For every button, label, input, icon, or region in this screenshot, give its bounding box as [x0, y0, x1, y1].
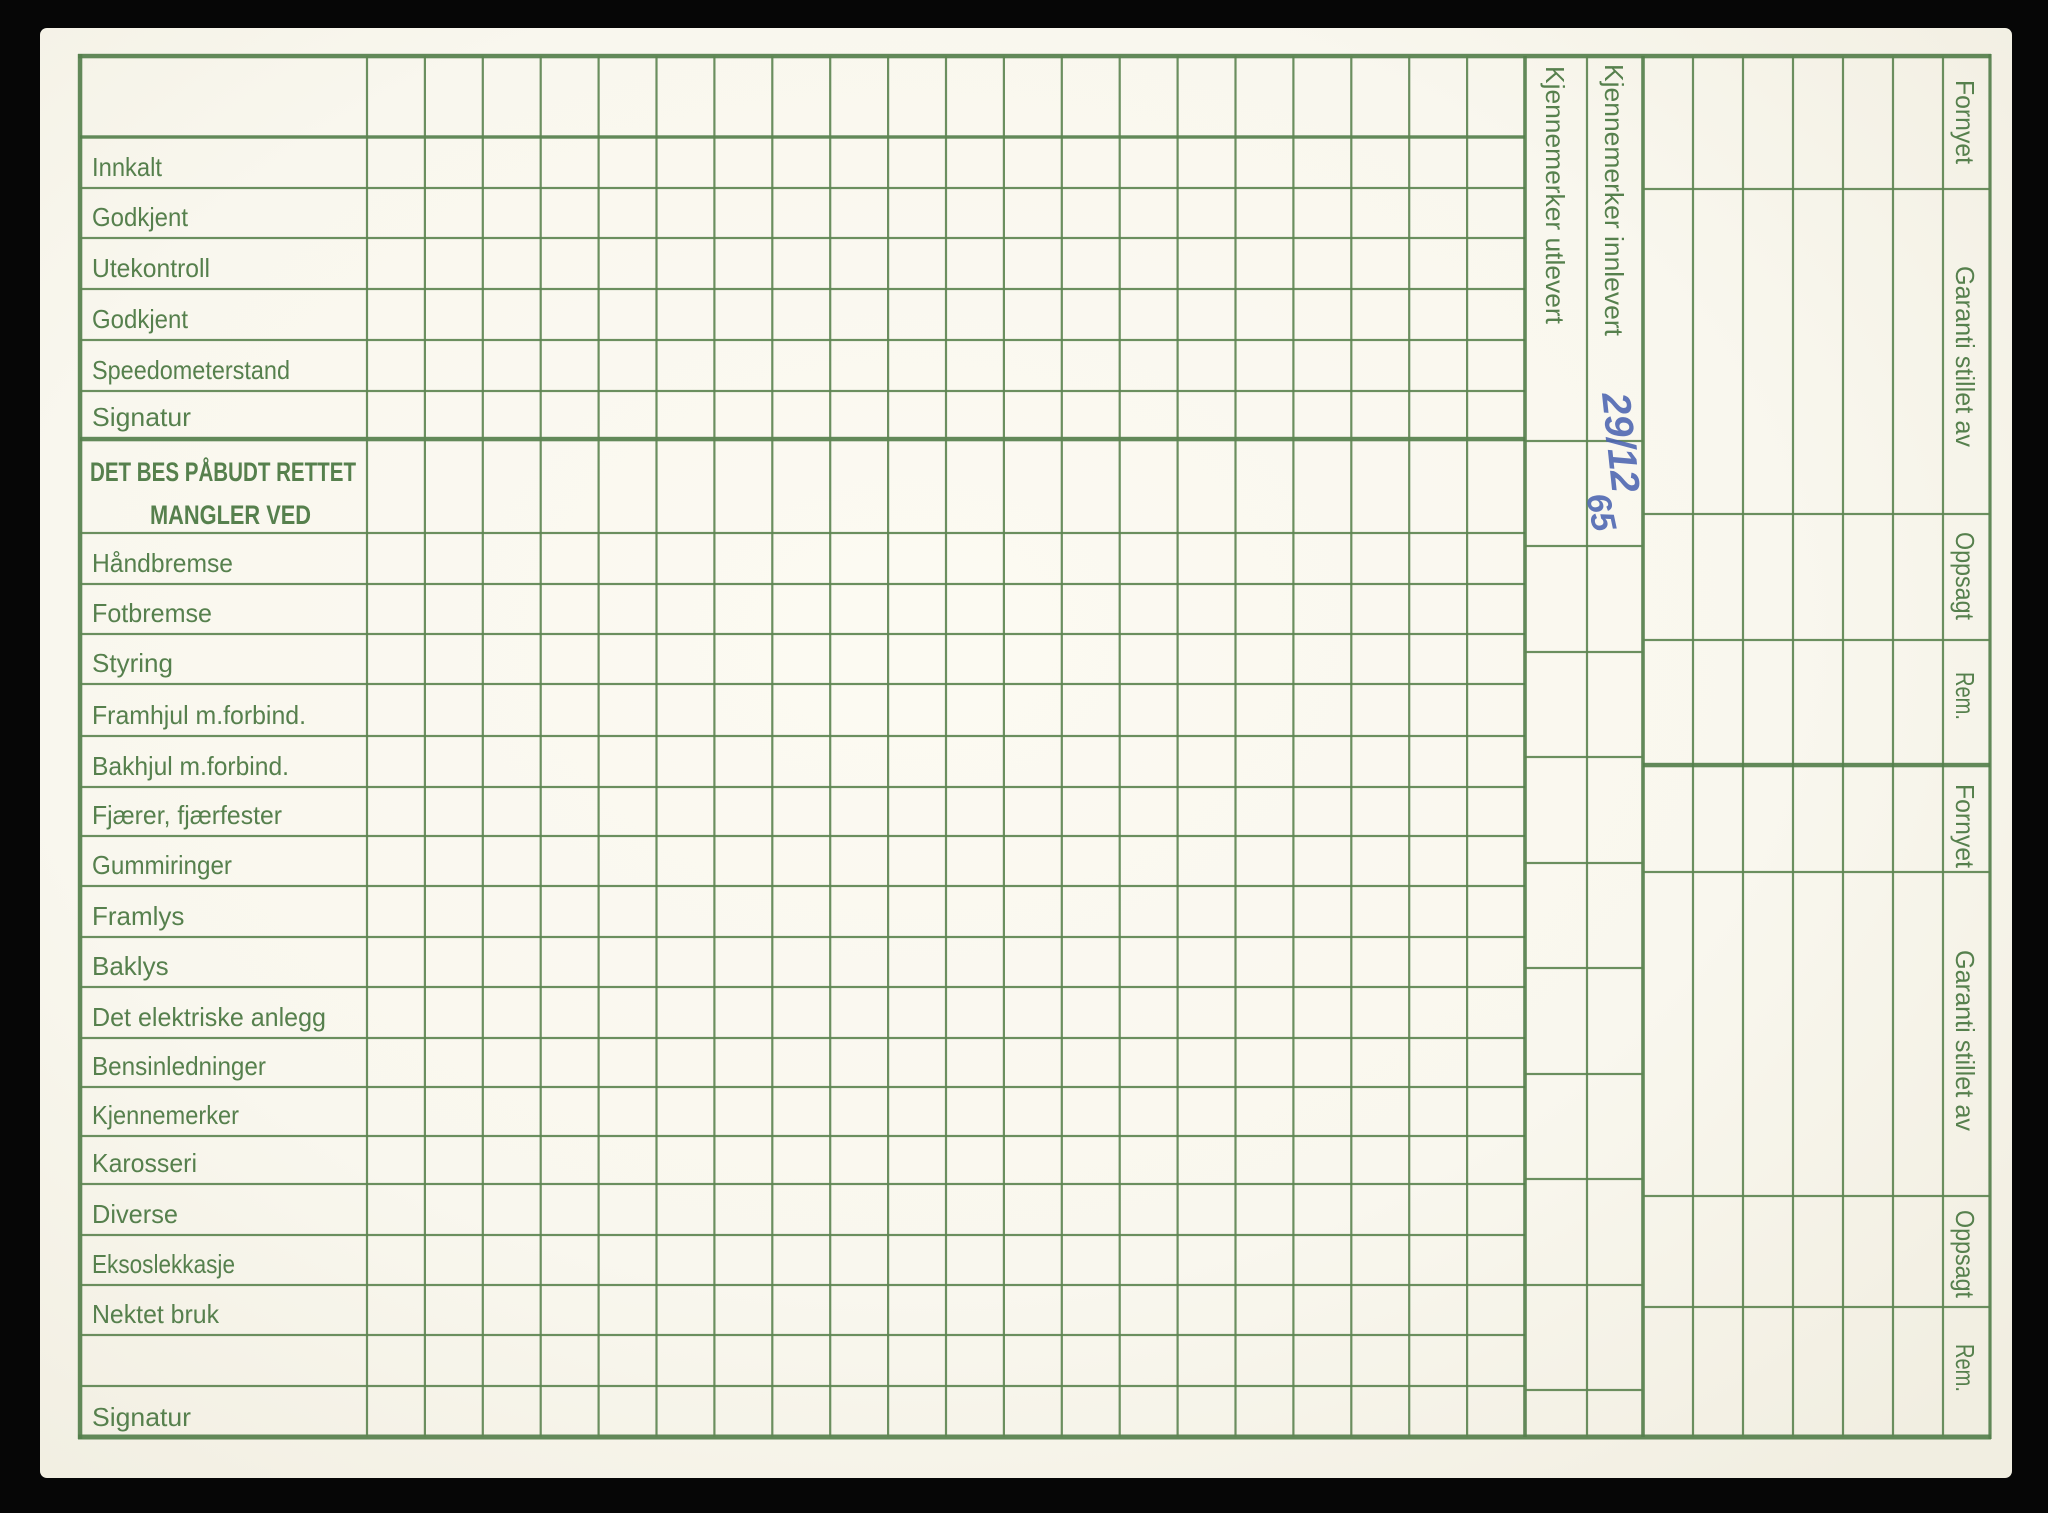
svg-text:Framlys: Framlys: [92, 901, 184, 931]
svg-text:Oppsagt: Oppsagt: [1950, 532, 1980, 621]
svg-text:Garanti stillet av: Garanti stillet av: [1950, 266, 1980, 447]
svg-text:Kjennemerker utlevert: Kjennemerker utlevert: [1540, 66, 1570, 325]
svg-text:Det elektriske anlegg: Det elektriske anlegg: [92, 1002, 326, 1032]
svg-text:Fotbremse: Fotbremse: [92, 598, 212, 628]
svg-text:Rem.: Rem.: [1950, 1344, 1980, 1392]
svg-text:Garanti stillet av: Garanti stillet av: [1950, 950, 1980, 1131]
svg-text:Framhjul m.forbind.: Framhjul m.forbind.: [92, 700, 306, 730]
svg-text:Baklys: Baklys: [92, 951, 169, 981]
svg-text:DET BES PÅBUDT RETTET: DET BES PÅBUDT RETTET: [90, 456, 356, 487]
svg-text:Innkalt: Innkalt: [92, 152, 163, 182]
svg-text:Diverse: Diverse: [92, 1199, 178, 1229]
svg-text:Fornyet: Fornyet: [1950, 80, 1980, 165]
svg-text:Fornyet: Fornyet: [1950, 784, 1980, 869]
svg-text:Oppsagt: Oppsagt: [1950, 1210, 1980, 1299]
svg-text:Bensinledninger: Bensinledninger: [92, 1051, 266, 1081]
svg-text:Rem.: Rem.: [1950, 672, 1980, 720]
svg-text:Godkjent: Godkjent: [92, 304, 189, 334]
svg-text:Gummiringer: Gummiringer: [92, 850, 232, 880]
svg-text:Godkjent: Godkjent: [92, 202, 189, 232]
svg-text:Karosseri: Karosseri: [92, 1148, 197, 1178]
svg-text:Kjennemerker: Kjennemerker: [92, 1100, 239, 1130]
svg-text:Signatur: Signatur: [92, 1402, 191, 1432]
svg-text:Speedometerstand: Speedometerstand: [92, 355, 290, 385]
svg-text:Fjærer, fjærfester: Fjærer, fjærfester: [92, 800, 282, 830]
svg-text:Utekontroll: Utekontroll: [92, 253, 210, 283]
svg-text:Håndbremse: Håndbremse: [92, 548, 233, 578]
svg-text:Kjennemerker innlevert: Kjennemerker innlevert: [1599, 64, 1629, 337]
svg-text:Nektet bruk: Nektet bruk: [92, 1299, 220, 1329]
svg-text:Signatur: Signatur: [92, 402, 191, 432]
svg-text:Styring: Styring: [92, 648, 173, 678]
svg-text:Eksoslekkasje: Eksoslekkasje: [92, 1249, 235, 1279]
svg-text:Bakhjul m.forbind.: Bakhjul m.forbind.: [92, 751, 289, 781]
svg-text:MANGLER VED: MANGLER VED: [150, 500, 311, 530]
